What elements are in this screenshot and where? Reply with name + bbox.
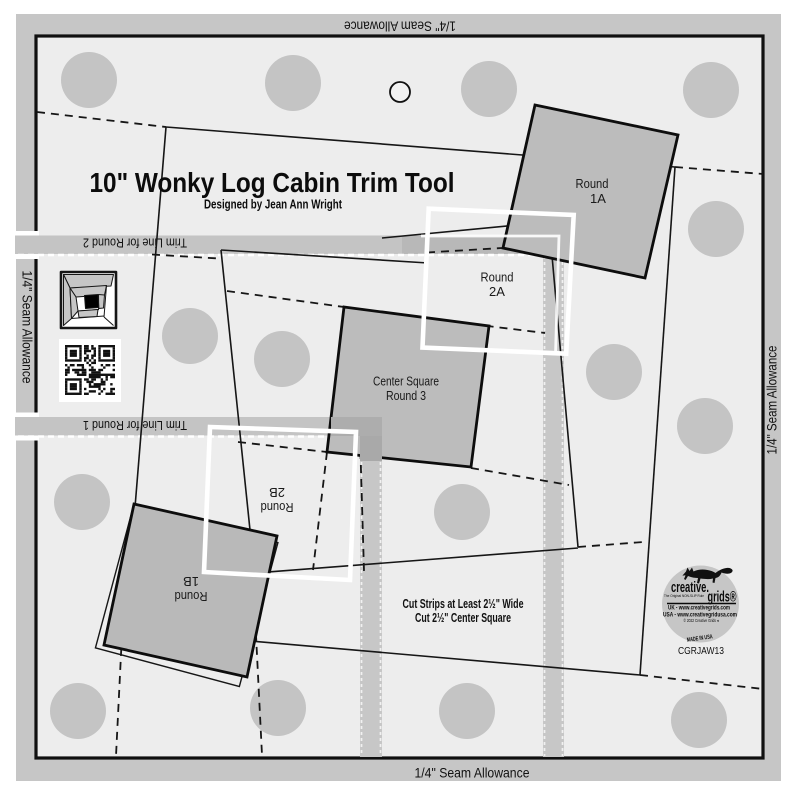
svg-text:Trim Line for Round 1: Trim Line for Round 1: [83, 418, 187, 433]
svg-text:Round 3: Round 3: [386, 388, 426, 403]
svg-text:Round: Round: [576, 176, 609, 191]
svg-text:Round: Round: [481, 270, 514, 285]
svg-text:1/4" Seam Allowance: 1/4" Seam Allowance: [415, 765, 530, 781]
svg-text:1/4" Seam Allowance: 1/4" Seam Allowance: [765, 346, 780, 455]
svg-text:1A: 1A: [590, 191, 606, 206]
svg-text:Designed by Jean Ann Wright: Designed by Jean Ann Wright: [204, 197, 343, 212]
svg-text:© 2022 Creative Grids ◂: © 2022 Creative Grids ◂: [684, 618, 719, 623]
svg-text:10" Wonky Log Cabin Trim Tool: 10" Wonky Log Cabin Trim Tool: [90, 167, 455, 198]
svg-text:Round: Round: [261, 500, 294, 515]
svg-text:Cut Strips at Least 2½" Wide: Cut Strips at Least 2½" Wide: [403, 596, 524, 611]
svg-text:Cut 2½" Center Square: Cut 2½" Center Square: [415, 610, 511, 625]
svg-text:2A: 2A: [489, 284, 505, 299]
svg-text:1/4" Seam Allowance: 1/4" Seam Allowance: [344, 19, 456, 34]
svg-text:1/4" Seam Allowance: 1/4" Seam Allowance: [20, 271, 35, 384]
svg-text:Round: Round: [175, 589, 208, 604]
svg-text:The Original NON-SLIP Rule: The Original NON-SLIP Rule: [664, 594, 704, 598]
svg-text:CGRJAW13: CGRJAW13: [678, 646, 724, 657]
svg-text:Trim Line for Round 2: Trim Line for Round 2: [83, 236, 187, 251]
svg-text:UK - www.creativegrids.com: UK - www.creativegrids.com: [668, 605, 730, 612]
svg-text:2B: 2B: [269, 485, 285, 500]
svg-text:1B: 1B: [183, 574, 199, 589]
svg-text:Center Square: Center Square: [373, 374, 439, 389]
